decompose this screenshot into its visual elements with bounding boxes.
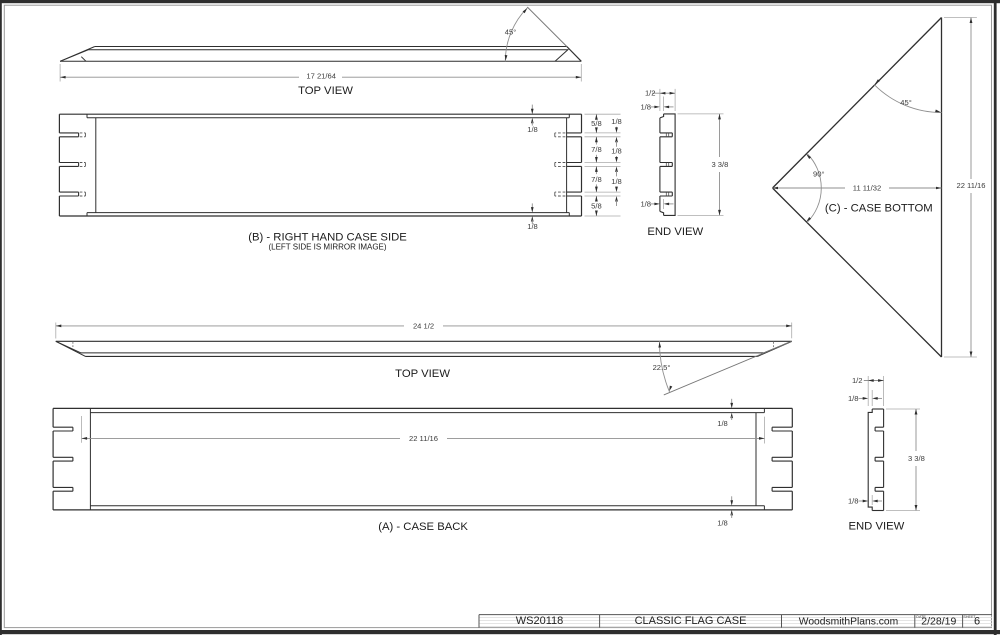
svg-text:(LEFT SIDE IS MIRROR IMAGE): (LEFT SIDE IS MIRROR IMAGE)	[268, 243, 386, 252]
svg-text:1/8: 1/8	[527, 125, 538, 134]
svg-text:1/8: 1/8	[717, 419, 728, 428]
svg-text:1/2: 1/2	[852, 376, 863, 385]
svg-text:WS20118: WS20118	[516, 615, 564, 627]
svg-text:45°: 45°	[900, 98, 911, 107]
svg-text:22.5°: 22.5°	[653, 363, 671, 372]
svg-text:1/8: 1/8	[611, 177, 622, 186]
svg-text:3 3/8: 3 3/8	[711, 160, 728, 169]
svg-text:1/8: 1/8	[527, 222, 538, 231]
svg-text:7/8: 7/8	[591, 175, 602, 184]
svg-text:CLASSIC FLAG CASE: CLASSIC FLAG CASE	[635, 615, 747, 627]
svg-text:(C) - CASE BOTTOM: (C) - CASE BOTTOM	[825, 203, 933, 215]
svg-text:TOP VIEW: TOP VIEW	[298, 85, 353, 97]
svg-text:1/8: 1/8	[640, 199, 651, 208]
svg-text:22 11/16: 22 11/16	[957, 181, 986, 190]
svg-text:22 11/16: 22 11/16	[409, 434, 438, 443]
svg-text:END VIEW: END VIEW	[848, 521, 904, 533]
svg-text:45°: 45°	[505, 28, 516, 37]
svg-text:3 3/8: 3 3/8	[908, 454, 925, 463]
svg-text:(A) - CASE BACK: (A) - CASE BACK	[378, 521, 468, 533]
svg-text:1/8: 1/8	[717, 519, 728, 528]
svg-text:1/8: 1/8	[640, 102, 651, 111]
svg-text:17 21/64: 17 21/64	[306, 72, 336, 81]
svg-text:2/28/19: 2/28/19	[921, 615, 956, 627]
svg-text:END VIEW: END VIEW	[647, 226, 703, 238]
svg-text:1/8: 1/8	[848, 497, 859, 506]
svg-text:90°: 90°	[813, 169, 824, 178]
svg-text:1/2: 1/2	[645, 89, 656, 98]
svg-text:WoodsmithPlans.com: WoodsmithPlans.com	[799, 616, 898, 627]
svg-text:5/8: 5/8	[591, 202, 602, 211]
svg-text:TOP VIEW: TOP VIEW	[395, 368, 450, 380]
svg-text:7/8: 7/8	[591, 145, 602, 154]
svg-text:1/8: 1/8	[848, 394, 859, 403]
svg-text:11 11/32: 11 11/32	[853, 184, 881, 193]
svg-text:5/8: 5/8	[591, 119, 602, 128]
svg-text:6: 6	[974, 615, 980, 627]
svg-text:1/8: 1/8	[611, 146, 622, 155]
svg-text:1/8: 1/8	[611, 117, 622, 126]
svg-text:24 1/2: 24 1/2	[413, 321, 434, 330]
